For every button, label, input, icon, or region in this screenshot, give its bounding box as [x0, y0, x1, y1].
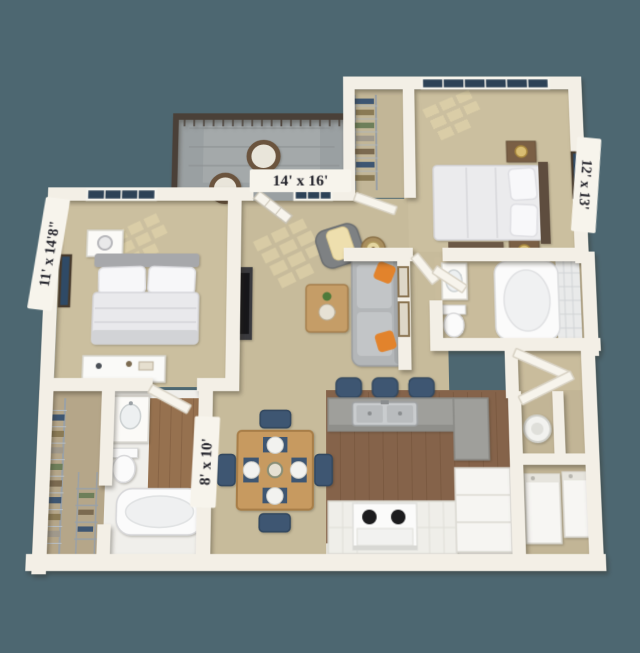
- tv: [240, 273, 250, 334]
- label-bedroom-right-text: 12' x 13': [575, 159, 594, 211]
- side-counter: [453, 398, 489, 459]
- bar-stool: [372, 378, 397, 397]
- oven-front: [357, 529, 413, 546]
- label-bath-hall-text: 8' x 10': [197, 438, 216, 486]
- stove-handle: [353, 546, 417, 550]
- wicker-chair: [249, 142, 278, 170]
- wall: [96, 524, 111, 562]
- wall: [442, 248, 589, 262]
- wall: [39, 378, 152, 391]
- plate: [267, 437, 283, 453]
- headboard: [94, 254, 199, 268]
- wall: [197, 378, 240, 391]
- label-living-room: 14' x 16': [250, 169, 352, 192]
- burner: [362, 510, 377, 525]
- washer-panel: [525, 474, 560, 482]
- pillow: [148, 266, 196, 294]
- centerpiece: [268, 463, 282, 478]
- tub-basin: [125, 496, 194, 528]
- sink: [120, 404, 141, 428]
- bar-stool: [409, 378, 435, 397]
- wall: [403, 88, 416, 198]
- toilet-bowl: [444, 313, 464, 337]
- coffee-table-tray: [319, 304, 335, 320]
- wall-art: [59, 255, 71, 306]
- dining-chair: [218, 454, 236, 485]
- floorplan-image: 14' x 16' 11' x 14'8" 12' x 13' 8' x 10': [0, 19, 640, 653]
- plant: [322, 292, 331, 301]
- dining-chair: [259, 514, 290, 532]
- toilet-bowl: [112, 456, 135, 483]
- pillow: [508, 168, 538, 201]
- fridge-cabinet: [455, 468, 513, 552]
- label-bath-hall: 8' x 10': [190, 416, 220, 508]
- pillow: [510, 204, 537, 237]
- dining-chair: [260, 410, 291, 427]
- floorplan-stage: 14' x 16' 11' x 14'8" 12' x 13' 8' x 10': [0, 0, 640, 640]
- plate: [243, 462, 260, 479]
- lamp: [98, 236, 112, 250]
- label-living-room-text: 14' x 16': [273, 173, 329, 190]
- plate: [267, 488, 284, 505]
- gold-lamp: [515, 146, 527, 157]
- pillow: [99, 266, 146, 294]
- faucet: [381, 400, 389, 404]
- plate: [290, 462, 306, 479]
- wall-art: [398, 267, 408, 296]
- dresser-tray: [139, 362, 153, 370]
- washer: [525, 474, 562, 543]
- dining-chair: [315, 454, 332, 485]
- window: [87, 189, 156, 199]
- wall-art: [399, 302, 409, 336]
- window: [422, 78, 549, 88]
- foot-throw: [92, 330, 198, 344]
- wire-shelf-rail: [376, 95, 377, 190]
- sink-drain: [368, 411, 372, 415]
- bar-stool: [336, 378, 361, 397]
